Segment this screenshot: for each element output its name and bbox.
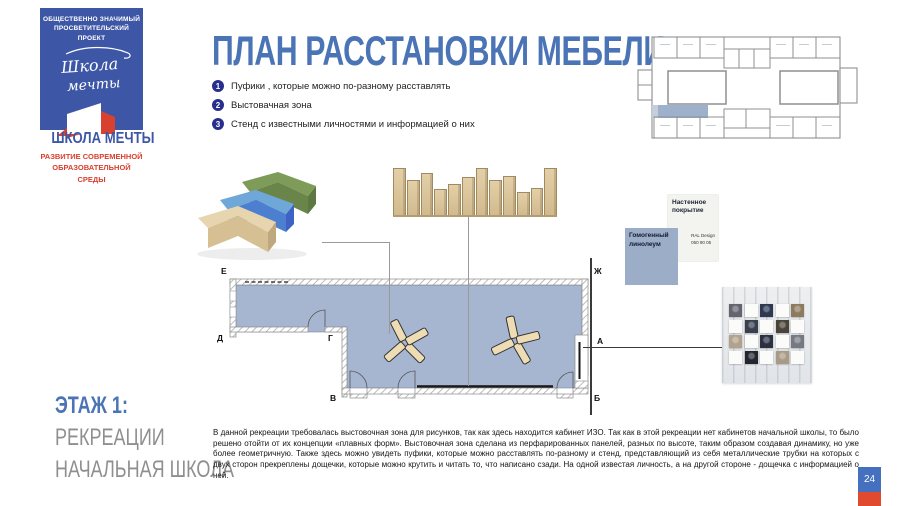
legend-item: 2 Выстовачная зона (212, 99, 475, 111)
svg-text:Школа: Школа (59, 54, 118, 77)
legend: 1 Пуфики , которые можно по-разному расс… (212, 80, 475, 137)
wall-slat (476, 168, 489, 215)
legend-item-label: Выстовачная зона (231, 100, 312, 111)
blank-tile (745, 335, 758, 348)
blank-tile (760, 351, 773, 364)
portrait-tile (760, 304, 773, 317)
blank-tile (729, 351, 742, 364)
building-overview-plan (628, 26, 868, 144)
axis-label-zh: Ж (594, 266, 602, 276)
description-text: В данной рекреации требовалась выстовочн… (213, 428, 859, 482)
portrait-stand-image (722, 287, 812, 383)
portrait-tile (729, 304, 742, 317)
legend-item-label: Стенд с известными личностями и информац… (231, 119, 475, 130)
axis-label-a: А (597, 336, 603, 346)
logo-tagline: РАЗВИТИЕ СОВРЕМЕННОЙ ОБРАЗОВАТЕЛЬНОЙ СРЕ… (40, 151, 143, 185)
floor-linoleum-sample: Гомогенный линолеум (625, 228, 678, 285)
axis-label-e: Е (221, 266, 227, 276)
highlighted-recreation-zone (658, 105, 708, 118)
page-number-accent (858, 492, 881, 506)
logo-project-label: ОБЩЕСТВЕННО ЗНАЧИМЫЙ ПРОСВЕТИТЕЛЬСКИЙ ПР… (40, 8, 143, 43)
blank-tile (745, 304, 758, 317)
pouf-benches-image (190, 166, 335, 266)
portrait-tile (776, 351, 789, 364)
axis-label-g: Г (328, 333, 333, 343)
portrait-tile (745, 351, 758, 364)
logo-name: ШКОЛА МЕЧТЫ (40, 130, 143, 148)
axis-label-b: Б (594, 393, 600, 403)
floor-number: ЭТАЖ 1: (55, 394, 234, 418)
blank-tile (776, 304, 789, 317)
floor-school-type: НАЧАЛЬНАЯ ШКОЛА (55, 458, 234, 482)
leader-line-stand (583, 347, 722, 348)
legend-item-label: Пуфики , которые можно по-разному расста… (231, 81, 450, 92)
wall-slat (462, 177, 475, 215)
legend-item: 3 Стенд с известными личностями и информ… (212, 118, 475, 130)
logo-script-mark: Школа мечты (40, 44, 143, 96)
wall-covering-title: Настенное покрытие (668, 195, 718, 216)
axis-line-zh-b (590, 258, 592, 415)
portrait-tile (791, 304, 804, 317)
slide: ОБЩЕСТВЕННО ЗНАЧИМЫЙ ПРОСВЕТИТЕЛЬСКИЙ ПР… (0, 0, 900, 506)
wall-slat (434, 189, 447, 215)
blank-tile (776, 335, 789, 348)
wall-slat (448, 184, 461, 215)
floor-linoleum-title: Гомогенный линолеум (625, 228, 678, 250)
portrait-tile (791, 335, 804, 348)
blank-tile (791, 351, 804, 364)
stand-mark (579, 342, 581, 379)
portrait-tile (760, 335, 773, 348)
leader-line-poufs (389, 242, 390, 334)
svg-text:мечты: мечты (67, 75, 121, 95)
portrait-tile (745, 320, 758, 333)
wall-slat (421, 173, 434, 215)
blank-tile (729, 320, 742, 333)
legend-number-badge: 1 (212, 80, 224, 92)
wall-slat (503, 176, 516, 215)
leader-line-exhibition-wall (468, 216, 469, 386)
wall-slat (489, 180, 502, 215)
blank-tile (760, 320, 773, 333)
wall-slat (544, 168, 557, 215)
blank-tile (791, 320, 804, 333)
wall-slat (393, 168, 406, 215)
exhibition-wall-mark (417, 385, 553, 387)
leader-line-poufs (322, 242, 390, 243)
axis-label-v: В (330, 393, 336, 403)
wall-covering-spec: RAL Design 050 90 05 (691, 233, 715, 246)
page-number-badge: 24 (858, 467, 881, 492)
wall-slat (407, 180, 420, 215)
portrait-tile (776, 320, 789, 333)
portrait-tile (729, 335, 742, 348)
exhibition-wall-image (393, 167, 557, 215)
legend-item: 1 Пуфики , которые можно по-разному расс… (212, 80, 475, 92)
legend-number-badge: 2 (212, 99, 224, 111)
wall-slat (517, 192, 530, 215)
portrait-tile-grid (729, 304, 804, 364)
axis-label-d: Д (217, 333, 223, 343)
exhibition-wall-base (393, 215, 557, 217)
furniture-floor-plan (215, 255, 595, 420)
logo: ОБЩЕСТВЕННО ЗНАЧИМЫЙ ПРОСВЕТИТЕЛЬСКИЙ ПР… (40, 8, 143, 130)
legend-number-badge: 3 (212, 118, 224, 130)
page-title: ПЛАН РАССТАНОВКИ МЕБЕЛИ (212, 30, 665, 72)
wall-slat (531, 188, 544, 215)
floor-zone: РЕКРЕАЦИИ (55, 426, 234, 450)
